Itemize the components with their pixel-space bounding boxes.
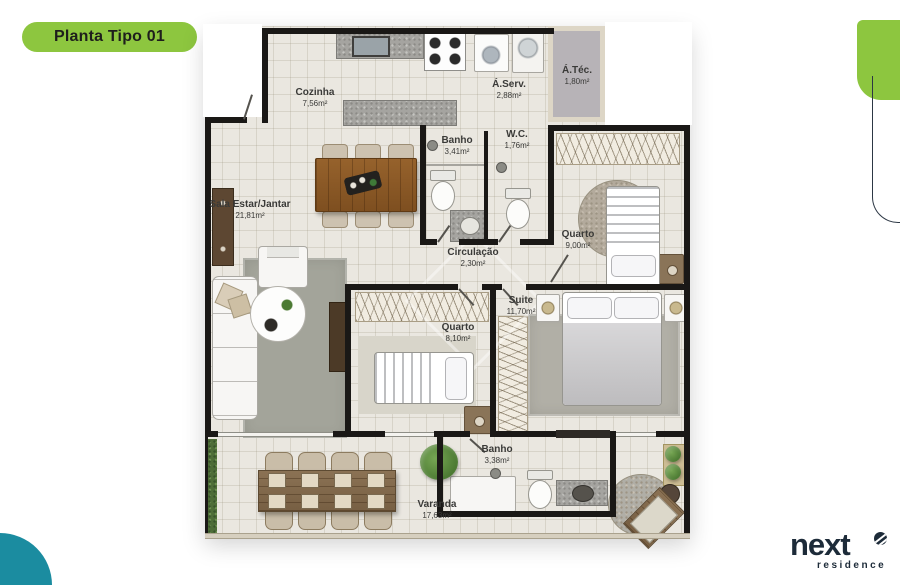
wall (610, 437, 616, 517)
room-label-banho2: Banho 3,38m² (467, 445, 527, 465)
placemat (268, 473, 286, 488)
banho2-toilet-bowl (528, 480, 552, 509)
floor-plan-scene: Planta Tipo 01 (0, 0, 900, 585)
wall (333, 431, 385, 437)
blanket (607, 187, 659, 249)
room-label-wc: W.C. 1,76m² (494, 130, 540, 150)
wall (205, 117, 211, 437)
wall (548, 125, 554, 245)
floor-plan: Cozinha 7,56m² Á.Serv. 2,88m² Á.Téc. 1,8… (0, 0, 900, 585)
wall (548, 125, 690, 131)
suite-double-bed (562, 292, 662, 406)
hedge (207, 439, 217, 533)
placemat (367, 473, 385, 488)
wall (459, 239, 498, 245)
quarto2-nightstand (464, 406, 492, 434)
room-label-quarto1: Quarto 9,00m² (548, 230, 608, 250)
toilet (430, 170, 456, 181)
banho2-shower-head (490, 468, 501, 479)
planter-plant (665, 446, 681, 462)
room-label-banho1: Banho 3,41m² (428, 136, 486, 156)
dining-chair (388, 211, 414, 228)
placemat (301, 473, 319, 488)
laundry-tank (512, 31, 544, 73)
wall (262, 28, 554, 34)
stove (424, 31, 466, 71)
floor-cutout-topright (605, 22, 692, 125)
bed-pillow (567, 297, 612, 319)
banho2-vanity (556, 480, 608, 506)
room-label-aserv: Á.Serv. 2,88m² (474, 80, 544, 100)
room-label-cozinha: Cozinha 7,56m² (275, 88, 355, 108)
room-label-quarto2: Quarto 8,10m² (428, 323, 488, 343)
window (385, 432, 434, 437)
sliding-glass-door (218, 432, 333, 437)
wall (262, 28, 268, 123)
wc-toilet (505, 188, 531, 199)
placemat (334, 473, 352, 488)
wall (684, 125, 690, 537)
placemat (301, 494, 319, 509)
room-label-atec: Á.Téc. 1,80m² (547, 66, 607, 86)
bed-pillow (445, 357, 467, 400)
sink-bowl (460, 217, 480, 235)
washing-machine (474, 34, 509, 72)
quarto2-bed (374, 352, 474, 404)
banho2-toilet (527, 470, 553, 480)
toilet-bowl (431, 181, 455, 211)
wall (420, 125, 426, 245)
logo-subtitle-text: residence (817, 560, 895, 571)
wall (205, 437, 208, 533)
dining-chair (322, 211, 348, 228)
blanket (375, 353, 435, 403)
room-label-sala: Sala Estar/Jantar 21,81m² (185, 200, 315, 220)
wall (345, 284, 351, 437)
placemat (334, 494, 352, 509)
armchair (258, 246, 308, 288)
balcony-railing (205, 533, 690, 539)
kitchen-island (343, 100, 457, 126)
sliding-glass-door (616, 432, 656, 437)
wc-shower-head (496, 162, 507, 173)
quarto1-nightstand (658, 254, 684, 284)
shower-glass-line (424, 164, 484, 166)
quarto1-bed (606, 186, 660, 290)
next-residence-logo: next residence (790, 528, 895, 578)
coffee-table (250, 286, 306, 342)
next-logo-icon (874, 532, 887, 545)
placemat (367, 494, 385, 509)
wall (526, 284, 690, 290)
room-label-suite: Suite 11,70m² (491, 296, 551, 316)
sink-bowl (572, 485, 594, 502)
quarto1-wardrobe (556, 133, 680, 165)
room-label-circulacao: Circulação 2,30m² (423, 248, 523, 268)
blanket (563, 323, 661, 405)
dining-chair (355, 211, 381, 228)
bed-pillow (614, 297, 659, 319)
armchair-back (267, 247, 299, 258)
planter-plant (665, 464, 681, 480)
kitchen-sink (352, 36, 390, 57)
wall (345, 284, 458, 290)
bed-pillow (611, 255, 656, 277)
banho1-vanity (450, 210, 488, 242)
room-label-varanda: Varanda 17,63m² (402, 500, 472, 520)
floor-cutout-topleft (203, 24, 262, 117)
placemat (268, 494, 286, 509)
banho2-shelf (556, 430, 610, 438)
wall (205, 117, 247, 123)
